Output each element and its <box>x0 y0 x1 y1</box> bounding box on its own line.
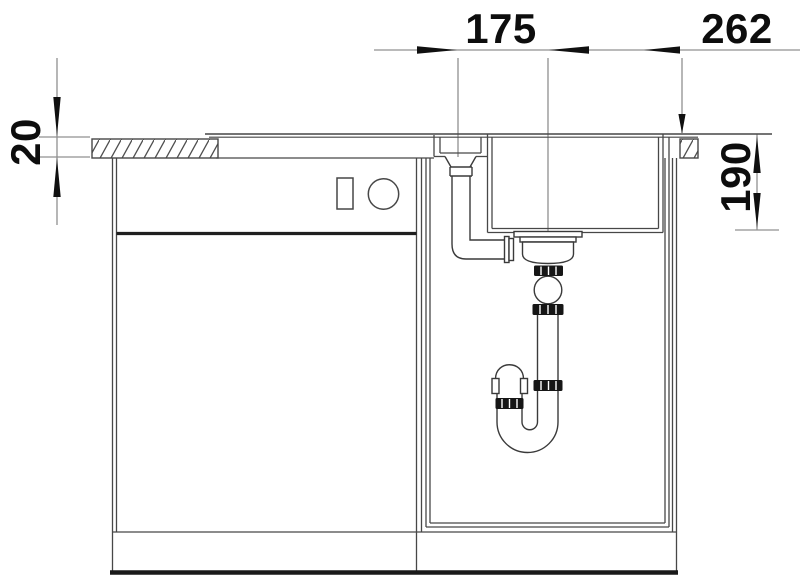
arrow-left-icon <box>549 46 589 54</box>
arrow-down-icon <box>678 114 685 134</box>
dimension-label-262: 262 <box>701 5 773 52</box>
countertop-section-left <box>92 139 218 158</box>
funnel-left <box>445 157 451 168</box>
countertop <box>92 134 772 158</box>
funnel-right <box>470 157 476 168</box>
pipe-end-flange-inner <box>509 239 514 261</box>
drain-flange-step <box>520 237 576 242</box>
cutout-symbol-square <box>337 178 353 209</box>
riser-dome-cap <box>496 365 524 379</box>
u-bend-outer <box>497 422 558 452</box>
arrow-down-icon <box>53 97 60 136</box>
sink-installation-drawing: 175 262 20 190 <box>0 0 800 576</box>
main-bowl <box>488 134 664 233</box>
drain-cup <box>523 242 574 264</box>
arrow-left-icon <box>644 46 680 53</box>
cutout-symbol-circle <box>368 179 398 209</box>
pipe-outer-wall <box>452 176 505 259</box>
arrow-up-icon <box>53 158 60 197</box>
drain-flange-plate <box>514 232 582 238</box>
drawing-canvas: 175 262 20 190 <box>0 0 800 576</box>
trap-siphon <box>492 266 564 453</box>
dimension-label-175: 175 <box>465 5 537 52</box>
riser-lug-right <box>521 379 528 394</box>
drain-assembly <box>514 232 582 264</box>
small-bowl <box>434 135 488 157</box>
ball-joint-elbow <box>534 276 562 304</box>
dimension-label-20: 20 <box>2 118 49 166</box>
countertop-section-right <box>680 139 698 158</box>
arrow-right-icon <box>417 46 457 54</box>
overflow-pipe <box>445 157 514 263</box>
base-cabinet <box>110 137 678 573</box>
dimension-label-190: 190 <box>712 141 759 213</box>
u-bend-inner <box>522 422 538 430</box>
dimension-thickness: 20 <box>2 58 90 225</box>
dimension-depth: 190 <box>712 134 779 230</box>
riser-lug-left <box>492 379 499 394</box>
